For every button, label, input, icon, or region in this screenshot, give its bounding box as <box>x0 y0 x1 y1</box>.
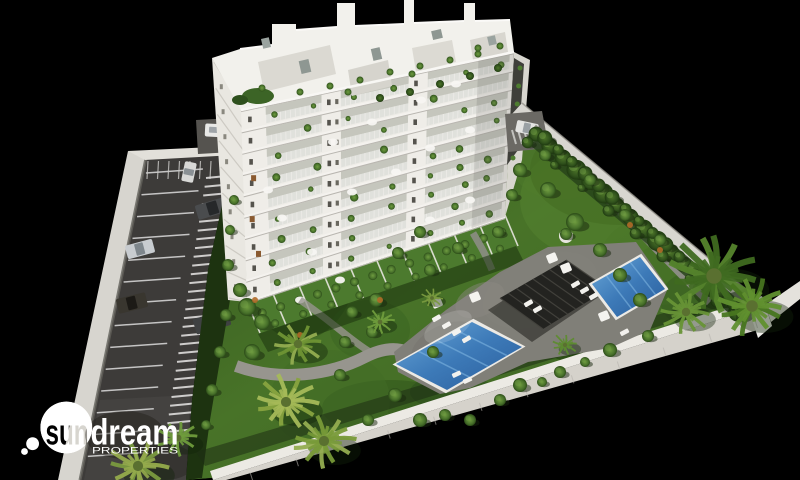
svg-text:PROPERTIES: PROPERTIES <box>92 446 178 456</box>
